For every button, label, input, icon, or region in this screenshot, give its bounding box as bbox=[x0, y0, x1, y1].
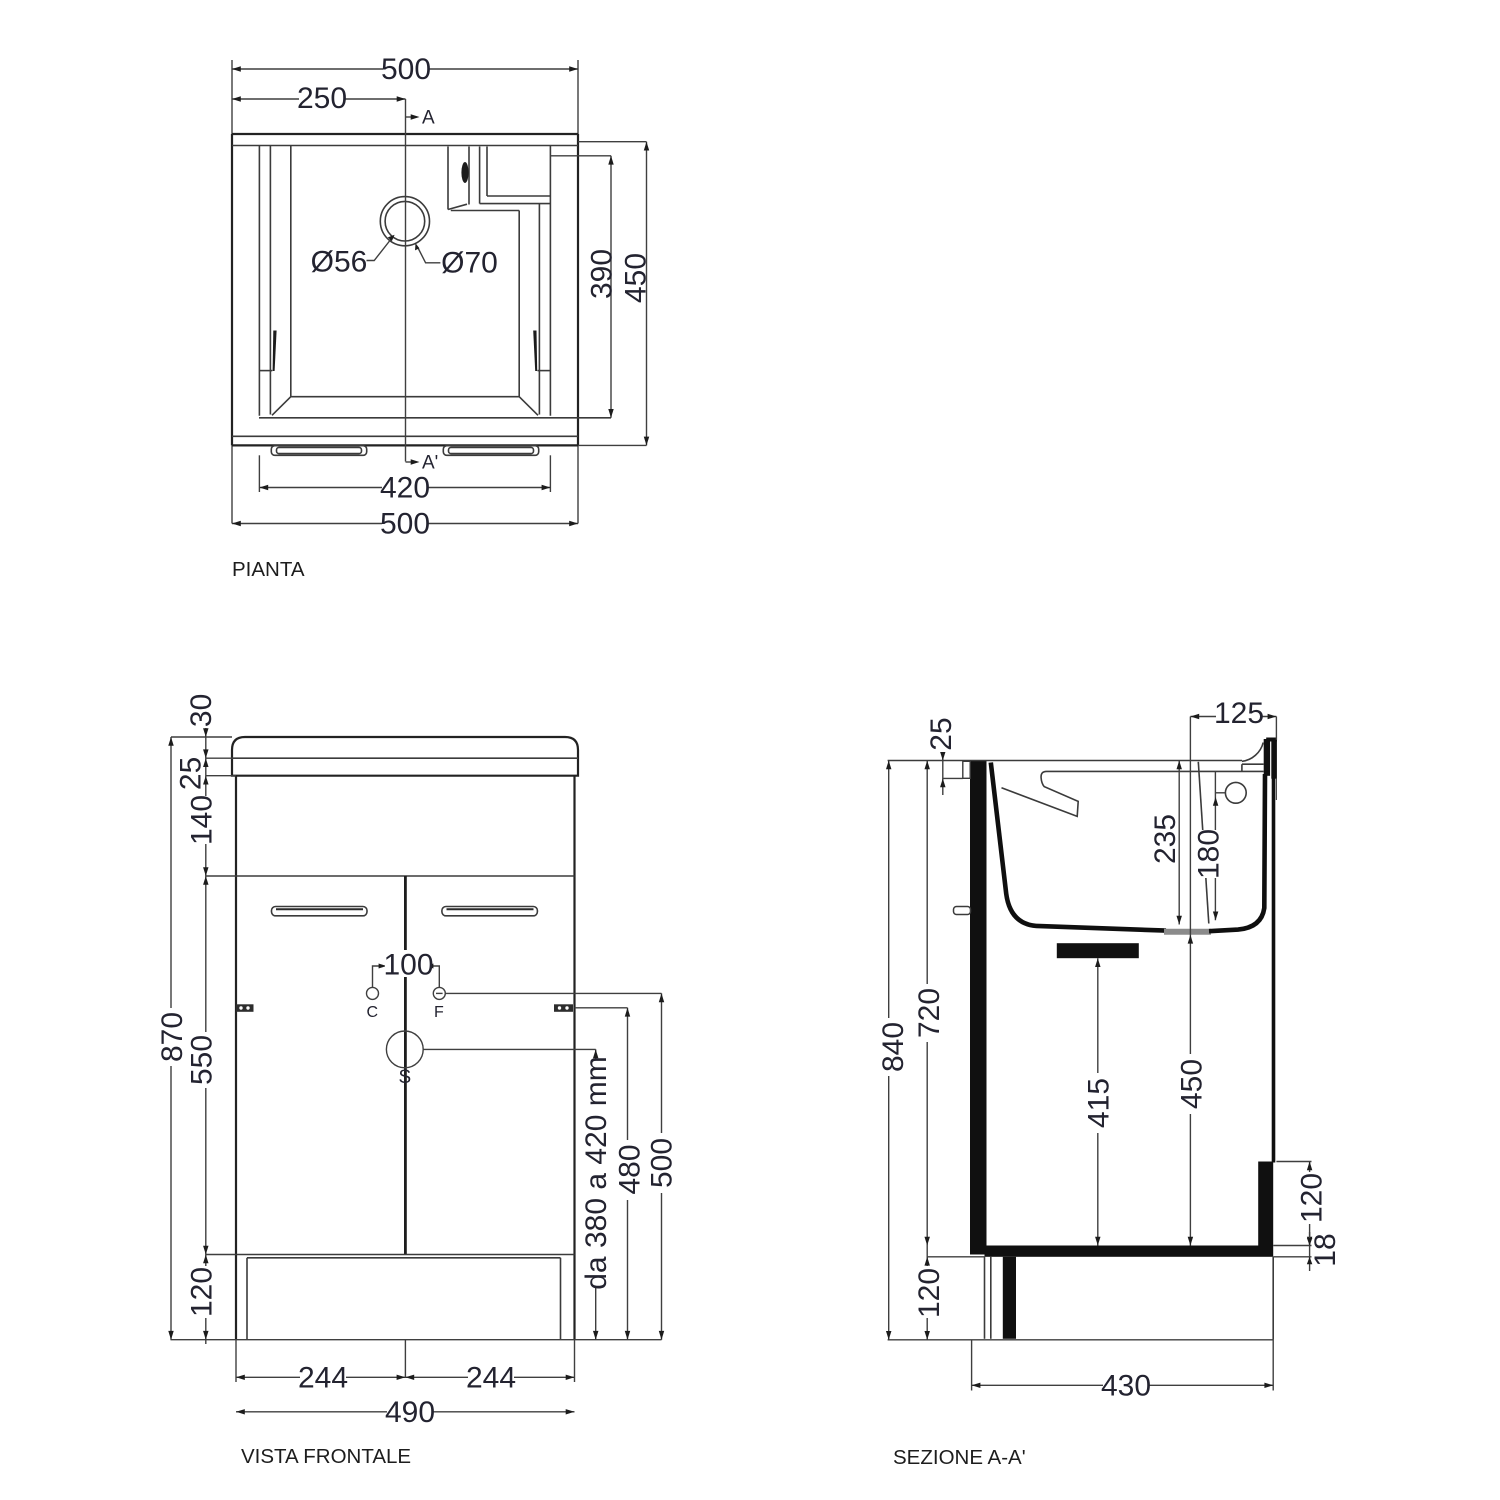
svg-text:500: 500 bbox=[381, 53, 431, 86]
svg-text:500: 500 bbox=[646, 1138, 679, 1188]
svg-text:Ø56: Ø56 bbox=[311, 246, 368, 279]
svg-text:840: 840 bbox=[877, 1022, 910, 1072]
svg-text:390: 390 bbox=[586, 249, 619, 299]
svg-text:140: 140 bbox=[186, 795, 219, 845]
svg-text:SEZIONE A-A': SEZIONE A-A' bbox=[893, 1446, 1026, 1469]
svg-text:VISTA FRONTALE: VISTA FRONTALE bbox=[241, 1445, 411, 1468]
svg-text:C: C bbox=[367, 1004, 379, 1021]
svg-text:PIANTA: PIANTA bbox=[232, 558, 305, 581]
svg-text:870: 870 bbox=[156, 1012, 189, 1062]
svg-text:120: 120 bbox=[186, 1267, 219, 1317]
svg-text:120: 120 bbox=[913, 1268, 946, 1318]
svg-text:25: 25 bbox=[925, 717, 958, 750]
svg-text:S: S bbox=[399, 1067, 412, 1088]
svg-text:720: 720 bbox=[913, 988, 946, 1038]
svg-text:F: F bbox=[434, 1004, 444, 1021]
svg-text:100: 100 bbox=[383, 949, 433, 982]
svg-text:235: 235 bbox=[1149, 814, 1182, 864]
svg-text:480: 480 bbox=[614, 1144, 647, 1194]
svg-text:450: 450 bbox=[1176, 1059, 1209, 1109]
svg-text:A: A bbox=[422, 108, 435, 129]
svg-text:450: 450 bbox=[620, 253, 653, 303]
svg-text:30: 30 bbox=[185, 694, 218, 727]
svg-text:180: 180 bbox=[1193, 829, 1226, 879]
svg-text:500: 500 bbox=[380, 508, 430, 541]
svg-text:18: 18 bbox=[1309, 1233, 1342, 1266]
svg-text:da 380 a 420 mm: da 380 a 420 mm bbox=[580, 1056, 613, 1289]
svg-text:A': A' bbox=[422, 453, 438, 474]
svg-text:250: 250 bbox=[297, 82, 347, 115]
svg-text:430: 430 bbox=[1101, 1369, 1151, 1402]
svg-text:125: 125 bbox=[1214, 697, 1264, 730]
svg-text:490: 490 bbox=[385, 1396, 435, 1429]
svg-text:244: 244 bbox=[298, 1361, 348, 1394]
svg-text:25: 25 bbox=[175, 757, 208, 790]
svg-text:550: 550 bbox=[186, 1035, 219, 1085]
svg-text:415: 415 bbox=[1083, 1078, 1116, 1128]
svg-text:244: 244 bbox=[466, 1361, 516, 1394]
svg-text:120: 120 bbox=[1296, 1173, 1329, 1223]
svg-text:420: 420 bbox=[380, 472, 430, 505]
svg-text:Ø70: Ø70 bbox=[441, 247, 498, 280]
